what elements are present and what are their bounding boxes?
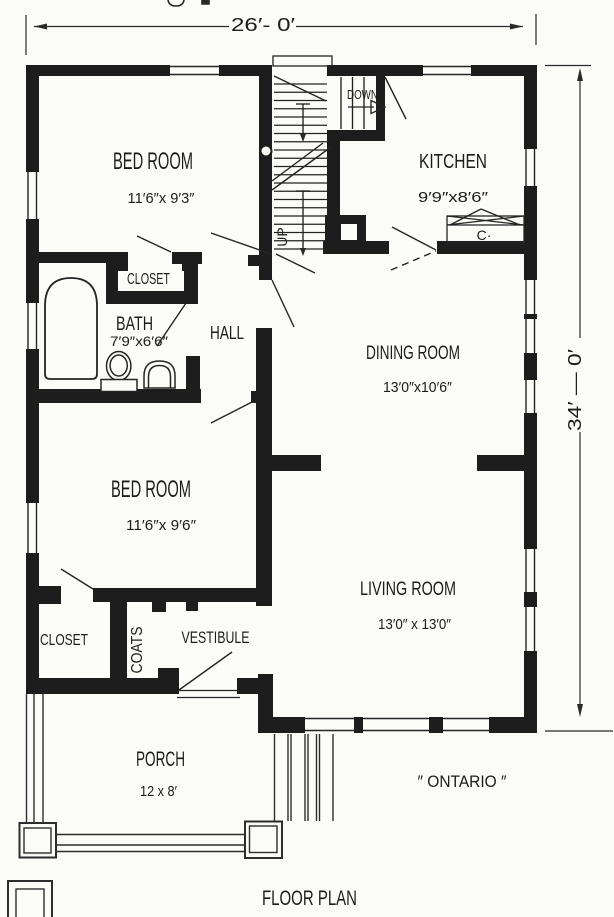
svg-text:34′ — 0′: 34′ — 0′ <box>565 348 585 431</box>
svg-text:LIVING ROOM: LIVING ROOM <box>360 579 456 600</box>
svg-text:PORCH: PORCH <box>136 748 185 771</box>
svg-text:7′9″x6′6″: 7′9″x6′6″ <box>110 333 168 349</box>
svg-text:BED ROOM: BED ROOM <box>111 476 191 503</box>
svg-text:11′6″x 9′6″: 11′6″x 9′6″ <box>126 517 197 534</box>
svg-text:12 x 8′: 12 x 8′ <box>140 783 177 800</box>
svg-text:CLOSET: CLOSET <box>40 632 88 649</box>
svg-text:BATH: BATH <box>116 314 153 335</box>
svg-text:13′0″x10′6″: 13′0″x10′6″ <box>383 379 453 396</box>
svg-text:BED ROOM: BED ROOM <box>113 148 193 175</box>
svg-text:FLOOR PLAN: FLOOR PLAN <box>262 887 357 910</box>
svg-text:26′- 0′: 26′- 0′ <box>231 15 296 35</box>
svg-text:DOWN: DOWN <box>347 87 378 102</box>
svg-text:″ ONTARIO ″: ″ ONTARIO ″ <box>418 772 507 791</box>
svg-text:C·: C· <box>477 227 492 243</box>
svg-text:13′0″ x 13′0″: 13′0″ x 13′0″ <box>378 616 452 633</box>
svg-text:HALL: HALL <box>210 323 244 343</box>
svg-text:DINING ROOM: DINING ROOM <box>366 343 460 364</box>
svg-text:CLOSET: CLOSET <box>127 271 170 288</box>
svg-text:COATS: COATS <box>129 627 146 674</box>
svg-text:9′9″x8′6″: 9′9″x8′6″ <box>418 189 489 206</box>
svg-text:11′6″x 9′3″: 11′6″x 9′3″ <box>128 190 196 207</box>
svg-text:VESTIBULE: VESTIBULE <box>182 628 250 647</box>
svg-text:KITCHEN: KITCHEN <box>419 151 487 173</box>
svg-text:UP: UP <box>274 227 290 246</box>
